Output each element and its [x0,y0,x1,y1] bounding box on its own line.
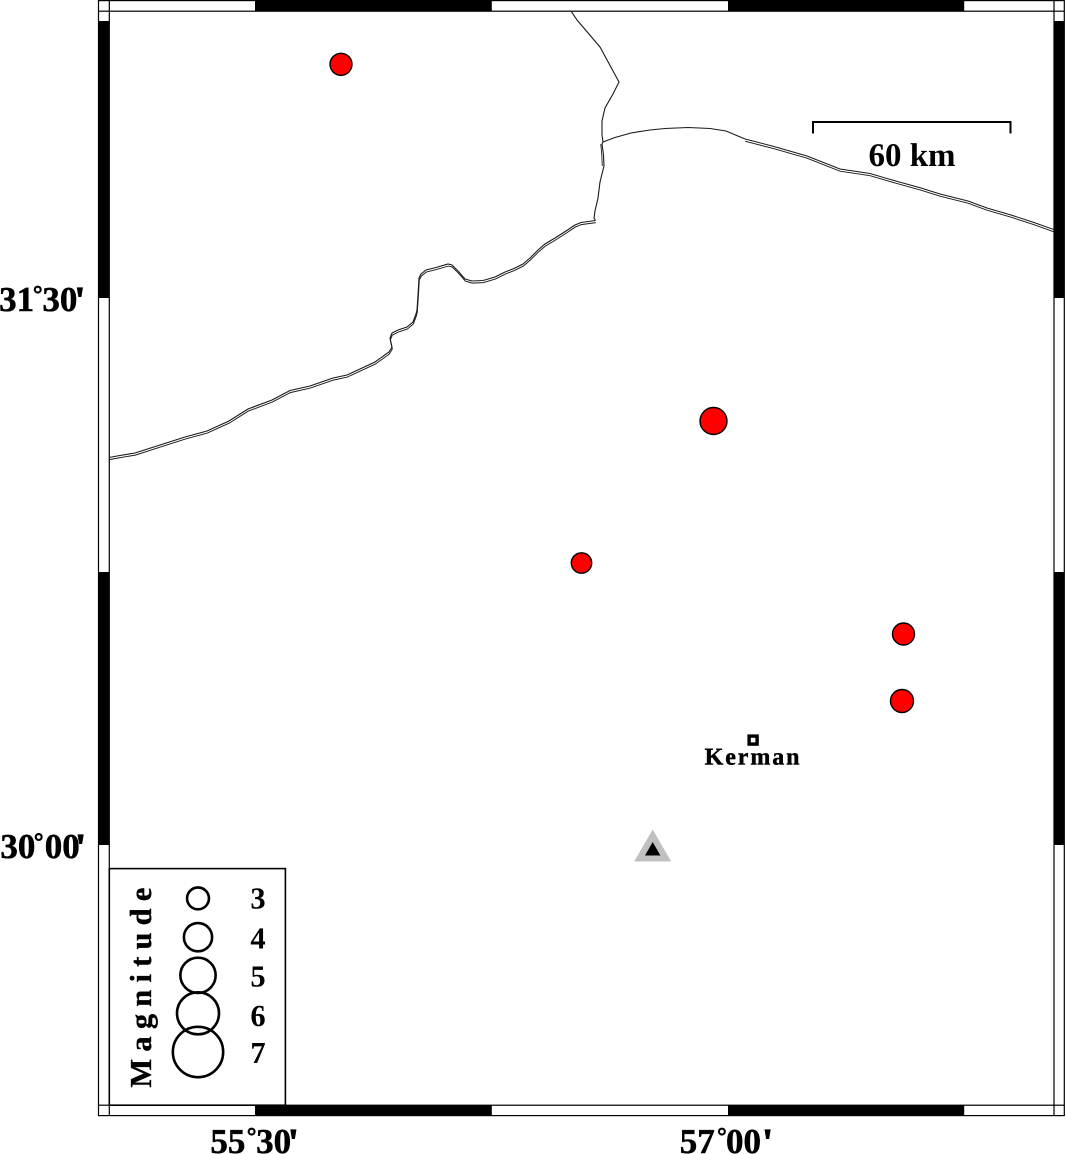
svg-text:5: 5 [250,960,265,994]
svg-text:30': 30' [256,1122,298,1154]
svg-text:31: 31 [0,280,34,319]
svg-text:6: 6 [250,999,265,1033]
svg-text:30': 30' [42,280,84,319]
svg-text:30: 30 [0,827,35,866]
svg-text:60 km: 60 km [868,138,955,174]
svg-text:Magnitude: Magnitude [124,880,158,1087]
svg-text:7: 7 [250,1036,265,1070]
svg-text:55: 55 [210,1122,245,1154]
svg-text:4: 4 [250,922,265,956]
svg-text:00': 00' [726,1122,773,1154]
svg-text:57: 57 [680,1122,715,1154]
svg-text:00': 00' [45,827,86,866]
svg-text:3: 3 [250,881,265,915]
svg-text:Kerman: Kerman [705,744,802,770]
